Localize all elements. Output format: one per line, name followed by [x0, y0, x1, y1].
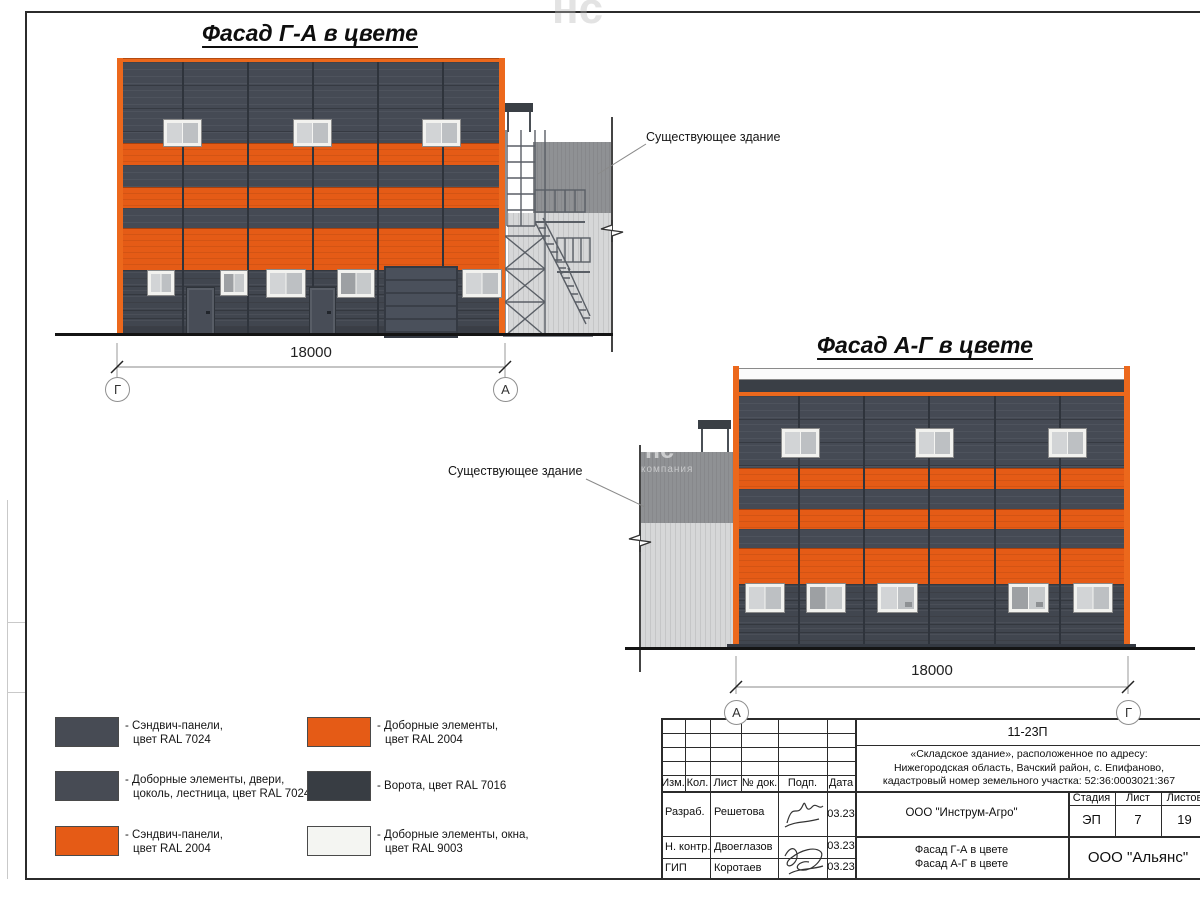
panel-band [117, 228, 505, 270]
staff-date: 03.23 [827, 861, 855, 873]
staff-role: Н. контр. [665, 841, 710, 853]
panel-band [739, 548, 1124, 584]
sheets-total-header: Листов [1161, 792, 1200, 804]
panel-band [739, 468, 1124, 489]
staff-role: Разраб. [665, 806, 705, 818]
watermark-text: нс [645, 436, 674, 465]
drawing-sheet: нс Фасад Г-А в цвете [0, 0, 1200, 900]
legend-label: - Доборные элементы, окна,цвет RAL 9003 [377, 829, 529, 856]
axis-bubble: А [724, 700, 749, 725]
building-facade-ga [117, 58, 505, 335]
watermark-top: нс [552, 0, 603, 34]
watermark-text: компания [641, 464, 693, 475]
break-symbol [625, 530, 655, 552]
panel-band [739, 509, 1124, 529]
canopy-post [727, 429, 729, 452]
legend-swatch [307, 826, 371, 856]
panel-band-base [739, 584, 1124, 650]
object-description: «Складское здание», расположенное по адр… [860, 748, 1198, 789]
legend-label: - Сэндвич-панели,цвет RAL 7024 [125, 720, 223, 747]
ground-line [55, 333, 613, 336]
signature [779, 793, 826, 834]
leader-line [596, 141, 650, 177]
fire-escape-stairs [498, 96, 618, 340]
axis-bubble: Г [105, 377, 130, 402]
window [1048, 428, 1087, 458]
gate [384, 266, 458, 338]
company-name: ООО "Альянс" [1068, 849, 1200, 866]
legend-label: - Ворота, цвет RAL 7016 [377, 780, 506, 794]
facade-ag-title: Фасад А-Г в цвете [810, 332, 1040, 359]
legend-label: - Доборные элементы, двери,цоколь, лестн… [125, 774, 310, 801]
window [915, 428, 954, 458]
legend-label: - Сэндвич-панели,цвет RAL 2004 [125, 829, 223, 856]
parapet-flashing [739, 368, 1124, 380]
stage-value: ЭП [1068, 812, 1115, 827]
window [1073, 583, 1113, 613]
existing-building-label: Существующее здание [448, 464, 582, 478]
stage-header: Стадия [1068, 792, 1115, 804]
window [806, 583, 846, 613]
dimension-label: 18000 [261, 344, 361, 361]
panel-band [739, 529, 1124, 548]
org-name: ООО "Инструм-Агро" [855, 807, 1068, 819]
legend-swatch [55, 826, 119, 856]
window [163, 119, 202, 147]
rev-header: Подп. [778, 777, 827, 789]
staff-name: Двоеглазов [714, 841, 772, 853]
corner-post [1124, 366, 1130, 650]
legend-swatch [307, 717, 371, 747]
panel-joint [377, 62, 379, 335]
staff-name: Коротаев [714, 862, 762, 874]
axis-bubble: Г [1116, 700, 1141, 725]
existing-building-label: Существующее здание [646, 130, 780, 144]
legend-label: - Доборные элементы,цвет RAL 2004 [377, 720, 498, 747]
window [877, 583, 918, 613]
panel-joint [863, 396, 865, 644]
door [186, 287, 215, 336]
window [462, 269, 502, 298]
signature [779, 838, 826, 877]
sheet-header: Лист [1115, 792, 1161, 804]
rev-header: Лист [710, 777, 741, 789]
canopy-post [701, 429, 703, 452]
drawing-name: Фасад Г-А в цвете Фасад А-Г в цвете [855, 843, 1068, 871]
sheets-total-value: 19 [1161, 812, 1200, 827]
window [1008, 583, 1049, 613]
parapet-band [739, 380, 1124, 392]
window [220, 270, 248, 296]
legend-swatch [55, 717, 119, 747]
corner-post [117, 58, 123, 335]
staff-role: ГИП [665, 862, 687, 874]
roof-canopy [698, 420, 731, 429]
window [422, 119, 461, 147]
break-symbol [597, 220, 627, 242]
window [293, 119, 332, 147]
axis-bubble: А [493, 377, 518, 402]
staff-date: 03.23 [827, 840, 855, 852]
rev-header: Дата [827, 777, 855, 789]
leader-line [584, 476, 648, 510]
corner-post [733, 366, 739, 650]
window [147, 270, 175, 296]
rev-header: Изм. [661, 777, 685, 789]
staff-date: 03.23 [827, 808, 855, 820]
staff-name: Решетова [714, 806, 764, 818]
legend-swatch [307, 771, 371, 801]
rev-header: № док. [741, 777, 778, 789]
facade-ga-title: Фасад Г-А в цвете [200, 20, 420, 47]
panel-band [117, 208, 505, 228]
panel-band [739, 489, 1124, 509]
doc-code: 11-23П [855, 725, 1200, 739]
window [745, 583, 785, 613]
window [266, 269, 306, 298]
dimension-label: 18000 [882, 662, 982, 679]
rev-header: Кол. [685, 777, 710, 789]
panel-band [117, 165, 505, 187]
window [337, 269, 375, 298]
ground-line [625, 647, 1195, 650]
window [781, 428, 820, 458]
building-facade-ag [733, 366, 1130, 650]
sheet-value: 7 [1115, 812, 1161, 827]
panel-joint [182, 62, 184, 335]
panel-joint [994, 396, 996, 644]
legend-swatch [55, 771, 119, 801]
door [309, 287, 336, 336]
panel-band [117, 187, 505, 208]
